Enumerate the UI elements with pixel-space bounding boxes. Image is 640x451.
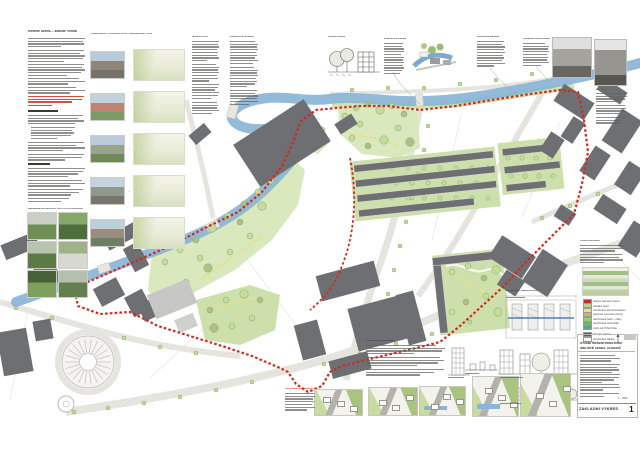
text-line bbox=[230, 44, 258, 45]
text-line bbox=[28, 183, 85, 184]
text-line bbox=[28, 154, 84, 155]
text-line bbox=[523, 59, 547, 60]
text-line bbox=[384, 73, 400, 74]
text-line bbox=[230, 93, 255, 94]
text-line bbox=[580, 389, 603, 390]
text-line bbox=[580, 396, 604, 397]
text-line bbox=[230, 101, 258, 102]
proposal-sketch bbox=[134, 218, 184, 248]
text-line bbox=[230, 75, 258, 76]
text-line bbox=[384, 57, 404, 58]
text-line bbox=[285, 407, 315, 408]
legend-color-chip bbox=[584, 304, 591, 307]
text-line bbox=[580, 355, 615, 356]
proposal-sketch bbox=[134, 176, 184, 206]
text-line bbox=[28, 55, 85, 56]
text-line bbox=[580, 369, 619, 370]
text-line bbox=[28, 46, 61, 47]
text-line bbox=[28, 142, 84, 143]
text-line bbox=[285, 398, 313, 399]
text-line bbox=[192, 41, 219, 42]
render-building bbox=[380, 401, 386, 405]
text-line bbox=[384, 62, 404, 63]
reference-photo bbox=[28, 242, 56, 268]
legend-label: navrhovaná zeleň – parky bbox=[593, 318, 622, 321]
text-line bbox=[230, 95, 258, 96]
text-line bbox=[28, 123, 75, 124]
text-line bbox=[596, 98, 625, 99]
axon-render bbox=[315, 390, 362, 415]
text-line bbox=[580, 387, 620, 388]
text-line bbox=[384, 59, 403, 60]
legend-row: navrhovaná stromořadí bbox=[584, 322, 636, 325]
render-building bbox=[324, 398, 330, 402]
historic-photo-1 bbox=[553, 38, 591, 77]
text-line bbox=[192, 72, 219, 73]
text-line bbox=[596, 117, 626, 118]
text-line bbox=[580, 358, 620, 359]
text-line bbox=[192, 105, 218, 106]
reference-photo bbox=[59, 242, 87, 268]
text-line bbox=[523, 65, 541, 66]
text-line bbox=[192, 69, 218, 70]
render-building bbox=[351, 407, 357, 411]
street-profile-label: ULIČNÍ PROFIL bbox=[328, 36, 345, 38]
text-line bbox=[596, 110, 624, 111]
detail-header: DETAIL OBYTNÉHO BLOKU bbox=[506, 290, 538, 292]
render-building bbox=[550, 402, 556, 406]
text-line bbox=[28, 159, 65, 160]
history-header: HISTORIE bbox=[596, 89, 607, 91]
sheet-title-line2: SÍDLIŠTĚ VESNA, CHOCEŇ bbox=[580, 346, 621, 350]
legend-label: hranice řešeného území bbox=[593, 300, 620, 303]
street-profile-sketch bbox=[328, 49, 380, 77]
stages-header: ETAPIZACE VÝSTAVBY bbox=[366, 340, 395, 343]
text-line bbox=[28, 118, 78, 119]
text-line bbox=[28, 157, 82, 158]
render-building bbox=[499, 396, 505, 400]
text-line bbox=[596, 96, 627, 97]
text-line bbox=[384, 48, 404, 49]
text-line bbox=[230, 78, 256, 79]
text-line bbox=[28, 81, 85, 82]
text-line bbox=[477, 41, 504, 42]
poster-sheet: Řešené území – sídliště Vesna POROVNÁNÍ … bbox=[0, 0, 640, 451]
text-line bbox=[31, 130, 72, 131]
text-line bbox=[580, 360, 611, 361]
text-line bbox=[596, 122, 620, 123]
text-line bbox=[28, 180, 82, 181]
text-line bbox=[580, 367, 617, 368]
legend-title: LEGENDA bbox=[584, 295, 596, 297]
legend-row: vodní tok Tichá Orlice bbox=[584, 326, 636, 329]
text-line bbox=[28, 41, 83, 42]
text-line bbox=[477, 44, 502, 45]
text-line bbox=[523, 62, 549, 63]
text-line bbox=[580, 262, 604, 263]
text-line bbox=[28, 189, 83, 190]
text-line bbox=[28, 78, 79, 79]
text-line bbox=[580, 377, 619, 378]
render-building bbox=[407, 396, 413, 400]
text-line bbox=[230, 52, 256, 53]
text-line bbox=[28, 38, 85, 39]
text-line bbox=[31, 138, 57, 139]
legend-label: vodní tok Tichá Orlice bbox=[593, 327, 617, 330]
proposal-sketch bbox=[134, 92, 184, 122]
text-line bbox=[384, 51, 404, 52]
text-line bbox=[31, 132, 74, 133]
text-line bbox=[192, 92, 219, 93]
legend-label: stávající zeleň bbox=[593, 305, 609, 308]
text-line bbox=[580, 374, 620, 375]
text-line bbox=[596, 113, 620, 114]
text-line bbox=[523, 54, 547, 55]
render-building bbox=[432, 405, 438, 409]
footer-label: ZÁKLADNÍ VÝKRES bbox=[579, 407, 618, 411]
text-line bbox=[28, 75, 67, 76]
historic-photo-2 bbox=[595, 40, 626, 85]
text-line bbox=[366, 360, 444, 361]
text-line bbox=[192, 87, 218, 88]
reference-photo bbox=[28, 271, 56, 297]
text-line bbox=[192, 55, 217, 56]
legend-label: pobytové zpevněné plochy bbox=[593, 313, 623, 316]
text-line bbox=[523, 48, 548, 49]
text-line bbox=[366, 365, 417, 366]
text-line bbox=[366, 350, 442, 351]
text-line bbox=[192, 98, 211, 99]
text-line bbox=[580, 364, 620, 365]
references-caption: REFERENČNÍ PŘÍKLADY OBYTNÝCH SOUBORŮ bbox=[28, 208, 83, 210]
legend-label: navrhované pěší komunikace bbox=[593, 309, 626, 312]
text-line bbox=[28, 110, 58, 112]
legend-color-chip bbox=[584, 309, 591, 312]
text-line bbox=[500, 377, 523, 378]
text-line bbox=[580, 384, 619, 385]
text-line bbox=[192, 67, 219, 68]
render-building bbox=[457, 400, 463, 404]
text-line bbox=[523, 57, 548, 58]
text-line bbox=[28, 105, 52, 106]
text-line bbox=[230, 67, 254, 68]
text-line bbox=[192, 57, 219, 58]
text-line bbox=[477, 63, 505, 64]
text-line bbox=[596, 108, 626, 109]
reference-photo bbox=[59, 213, 87, 239]
text-line bbox=[192, 113, 212, 114]
reference-photo bbox=[28, 213, 56, 239]
text-line bbox=[580, 379, 614, 380]
text-line bbox=[230, 90, 257, 91]
text-line bbox=[477, 49, 504, 50]
text-line bbox=[366, 345, 436, 346]
text-line bbox=[230, 83, 255, 84]
text-line bbox=[523, 43, 545, 44]
text-line bbox=[285, 404, 312, 405]
right-col-header: POPIS NÁVRHU bbox=[580, 240, 600, 243]
legend-row: pobytové zpevněné plochy bbox=[584, 313, 636, 316]
text-line bbox=[28, 120, 84, 121]
text-line bbox=[477, 52, 505, 53]
text-line bbox=[230, 86, 247, 87]
text-line bbox=[28, 101, 72, 102]
legend-row: stávající zeleň bbox=[584, 304, 636, 307]
text-line bbox=[192, 102, 217, 103]
text-line bbox=[28, 64, 84, 65]
text-line bbox=[366, 369, 444, 370]
text-line bbox=[28, 69, 85, 70]
top-axon-sketch bbox=[414, 43, 456, 70]
text-line bbox=[506, 297, 525, 298]
text-line bbox=[230, 81, 257, 82]
text-line bbox=[28, 61, 64, 62]
text-line bbox=[192, 52, 218, 53]
text-line bbox=[477, 65, 494, 66]
text-line bbox=[28, 58, 83, 59]
text-line bbox=[596, 93, 623, 94]
render-building bbox=[338, 402, 344, 406]
right-col-axon-render bbox=[583, 268, 628, 295]
text-line bbox=[28, 50, 84, 51]
text-line bbox=[230, 46, 257, 47]
public-space-header: VEŘEJNÁ PROSTRANSTVÍ bbox=[523, 38, 550, 40]
text-line bbox=[384, 43, 403, 44]
legend-color-chip bbox=[584, 313, 591, 316]
text-line bbox=[523, 51, 549, 52]
text-line bbox=[477, 60, 502, 61]
existing-state-photo bbox=[91, 52, 124, 78]
text-line bbox=[31, 135, 71, 136]
text-line bbox=[465, 373, 479, 374]
legend-row: navrhovaná zeleň – parky bbox=[584, 318, 636, 321]
text-line bbox=[28, 72, 81, 73]
text-line bbox=[366, 372, 434, 373]
text-line bbox=[230, 72, 257, 73]
legend-label: navrhovaná stromořadí bbox=[593, 322, 619, 325]
scale-note: 1 : 1000 bbox=[618, 397, 627, 400]
text-line bbox=[28, 53, 80, 54]
arrow-icon: → bbox=[127, 188, 131, 193]
detail-plan-drawing bbox=[506, 294, 576, 338]
text-line bbox=[230, 41, 255, 42]
text-line bbox=[28, 176, 68, 177]
text-line bbox=[230, 63, 253, 64]
render-river bbox=[420, 406, 465, 410]
render-building bbox=[444, 395, 450, 399]
text-line bbox=[192, 75, 217, 76]
text-line bbox=[192, 64, 216, 65]
circular-plaza bbox=[58, 336, 114, 412]
text-line bbox=[192, 107, 217, 108]
text-line bbox=[28, 145, 76, 146]
text-line bbox=[28, 99, 82, 100]
text-line bbox=[192, 95, 218, 96]
existing-state-photo bbox=[91, 178, 124, 204]
existing-state-photo bbox=[91, 136, 124, 162]
text-line bbox=[28, 198, 69, 199]
proposal-sketch bbox=[134, 134, 184, 164]
text-line bbox=[477, 57, 504, 58]
text-line bbox=[28, 96, 84, 97]
text-line bbox=[580, 259, 623, 260]
existing-state-photo bbox=[91, 220, 124, 246]
transport-header: DOPRAVNÍ ŘEŠENÍ bbox=[477, 36, 499, 38]
text-line bbox=[384, 46, 402, 47]
text-line bbox=[28, 90, 85, 91]
text-line bbox=[28, 192, 79, 193]
text-line bbox=[384, 54, 401, 55]
text-line bbox=[230, 98, 257, 99]
text-line bbox=[384, 70, 402, 71]
text-line bbox=[366, 353, 414, 354]
title-block-divider bbox=[578, 351, 635, 352]
text-line bbox=[28, 83, 68, 84]
text-line bbox=[448, 377, 464, 378]
text-line bbox=[384, 65, 403, 66]
text-line bbox=[192, 110, 219, 111]
sheet-title-line1: STUDIE ŘEŠENÍ PROSTORU bbox=[580, 341, 622, 345]
text-line bbox=[477, 46, 505, 47]
proposal-sketch bbox=[134, 50, 184, 80]
text-line bbox=[596, 101, 618, 102]
text-line bbox=[366, 374, 420, 375]
legend-row: hranice řešeného území bbox=[584, 300, 636, 303]
analysis2-header: KONCEPCE NÁVRHU bbox=[230, 36, 254, 38]
text-line bbox=[523, 46, 549, 47]
text-line bbox=[28, 168, 85, 169]
text-line bbox=[192, 78, 218, 79]
text-line bbox=[230, 70, 258, 71]
text-line bbox=[500, 403, 521, 404]
arrow-icon: → bbox=[127, 146, 131, 151]
legend-color-chip bbox=[584, 300, 591, 303]
text-line bbox=[596, 105, 625, 106]
render-building bbox=[486, 389, 492, 393]
text-line bbox=[285, 401, 314, 402]
text-line bbox=[230, 60, 258, 61]
text-line bbox=[28, 185, 70, 186]
text-line bbox=[28, 92, 70, 93]
text-line bbox=[28, 115, 83, 116]
axon-render bbox=[369, 388, 417, 415]
text-line bbox=[28, 201, 61, 202]
text-line bbox=[580, 393, 619, 394]
analysis1-header: ŠIRŠÍ VZTAHY bbox=[192, 36, 208, 38]
greenery-header: KONCEPCE ZELENĚ bbox=[384, 38, 406, 40]
arrow-icon: → bbox=[127, 62, 131, 67]
text-line bbox=[230, 55, 257, 56]
axon-render bbox=[473, 377, 518, 416]
text-line bbox=[28, 163, 50, 165]
legend-color-chip bbox=[584, 318, 591, 321]
sheet-number: 1 bbox=[629, 404, 634, 414]
text-line bbox=[230, 104, 249, 105]
text-line bbox=[192, 46, 219, 47]
text-line bbox=[192, 49, 217, 50]
text-line bbox=[384, 67, 404, 68]
text-line bbox=[192, 89, 215, 90]
arrow-icon: → bbox=[127, 230, 131, 235]
text-line bbox=[285, 393, 314, 394]
text-line bbox=[596, 120, 622, 121]
text-line bbox=[366, 357, 440, 358]
text-line bbox=[28, 171, 83, 172]
text-line bbox=[31, 127, 75, 128]
render-building bbox=[393, 406, 399, 410]
text-line bbox=[230, 49, 258, 50]
text-line bbox=[192, 60, 207, 61]
text-line bbox=[192, 80, 209, 81]
comparison-header: POROVNÁNÍ – STÁVAJÍCÍ STAV / NAVRHOVANÝ … bbox=[91, 33, 152, 35]
text-line bbox=[580, 245, 622, 246]
text-line bbox=[28, 67, 82, 68]
existing-state-photo bbox=[91, 94, 124, 120]
legend-color-chip bbox=[584, 326, 591, 329]
text-line bbox=[366, 348, 445, 349]
text-line bbox=[366, 362, 438, 363]
intro-title: Řešené území – sídliště Vesna bbox=[28, 30, 77, 33]
reference-photo bbox=[59, 271, 87, 297]
arrow-icon: → bbox=[127, 104, 131, 109]
text-line bbox=[230, 57, 255, 58]
text-line bbox=[580, 248, 623, 249]
axonometry-header: AXONOMETRIE NÁVRHU bbox=[285, 388, 314, 390]
text-line bbox=[580, 254, 622, 255]
text-line bbox=[192, 84, 219, 85]
title-block-tab bbox=[624, 334, 636, 340]
legend-row: navrhované pěší komunikace bbox=[584, 309, 636, 312]
axon-render bbox=[521, 374, 570, 416]
legend-color-chip bbox=[584, 322, 591, 325]
text-line bbox=[192, 44, 218, 45]
text-line bbox=[580, 250, 615, 251]
text-line bbox=[28, 43, 84, 44]
text-line bbox=[477, 55, 503, 56]
text-line bbox=[285, 409, 307, 410]
text-line bbox=[28, 147, 85, 148]
text-line bbox=[28, 150, 63, 151]
text-line bbox=[28, 87, 76, 88]
text-line bbox=[28, 194, 71, 195]
text-line bbox=[580, 257, 619, 258]
render-building bbox=[564, 387, 570, 391]
text-line bbox=[28, 173, 78, 174]
axon-render bbox=[420, 387, 465, 415]
text-line bbox=[285, 396, 315, 397]
render-building bbox=[537, 394, 543, 398]
